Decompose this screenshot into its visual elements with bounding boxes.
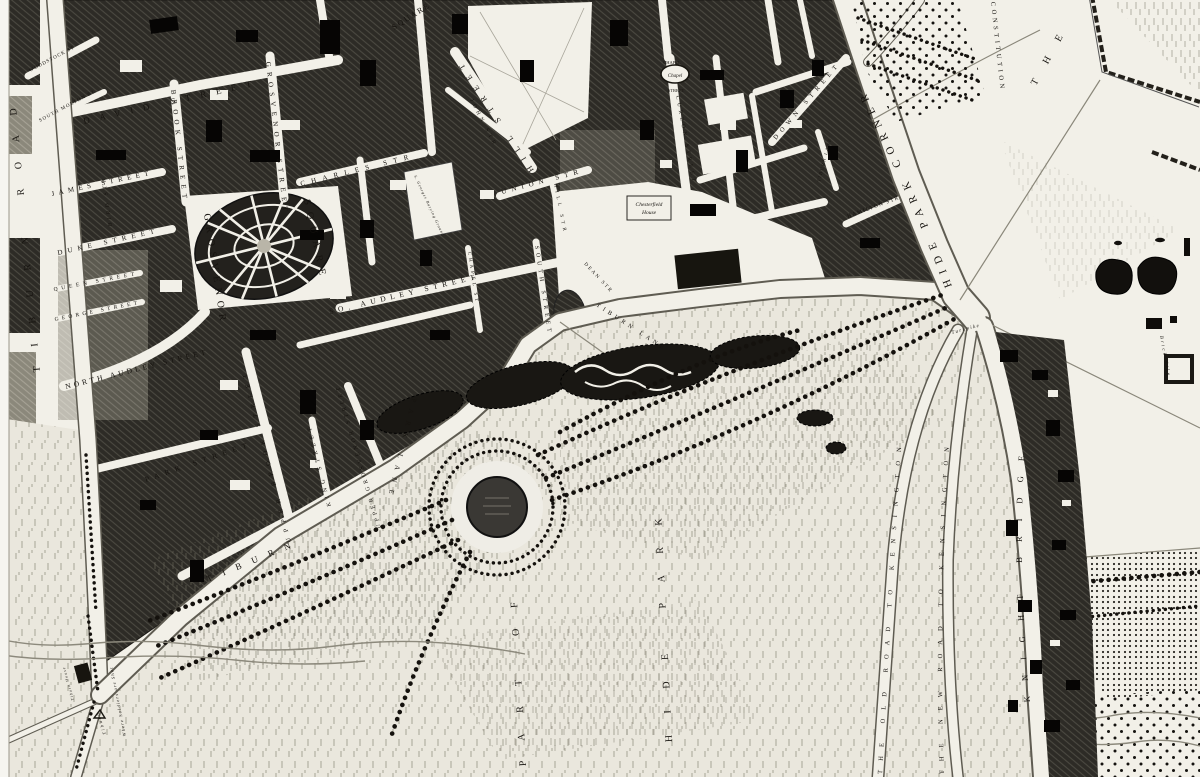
label-chapel-street-e1: CHAPEL <box>663 60 681 65</box>
brick-kiln-building <box>1166 356 1192 382</box>
chesterfield-house-footprint <box>674 249 741 290</box>
burying-ground-plot <box>404 162 462 240</box>
chesterfield-label-box <box>627 196 671 220</box>
label-chapel: Chapel <box>668 74 683 79</box>
pond-east <box>1138 257 1177 294</box>
label-chesterfield-1: Chesterfield <box>636 201 663 208</box>
label-chapel-street-e2: STREET <box>668 88 685 93</box>
paper-margin <box>0 0 9 777</box>
label-chesterfield-2: House <box>641 210 657 216</box>
map-canvas: TIBURN ROAD WOODSTOCK ST SOUTH MOLTON ST… <box>0 0 1200 777</box>
engraved-map: TIBURN ROAD WOODSTOCK ST SOUTH MOLTON ST… <box>0 0 1200 777</box>
pond-west <box>1096 259 1132 294</box>
round-basin <box>467 477 527 537</box>
